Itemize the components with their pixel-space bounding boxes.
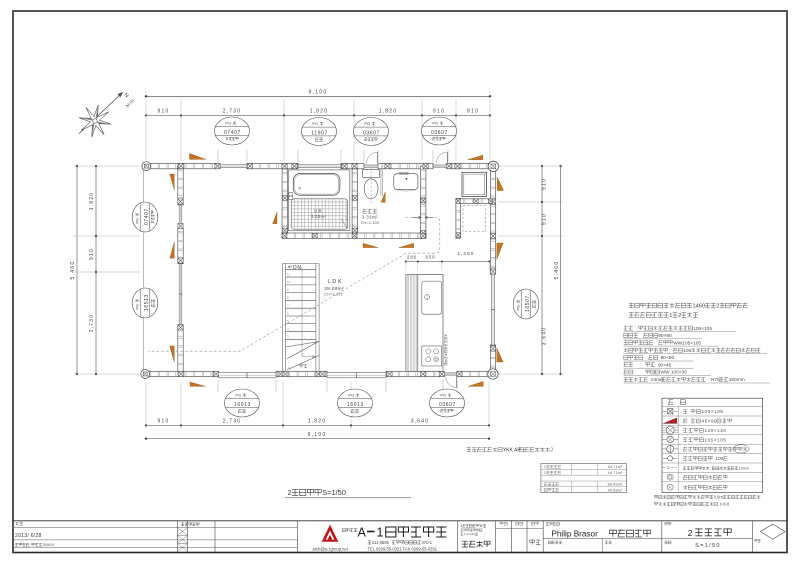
svg-text:PG: PG [516,305,521,311]
svg-text:1460: 1460 [693,304,705,310]
svg-text:910: 910 [89,248,95,260]
svg-text:2013/ 6/28: 2013/ 6/28 [15,533,42,539]
svg-text:PG: PG [432,121,438,126]
svg-text:24mm: 24mm [651,377,664,383]
svg-text:3.31m²: 3.31m² [362,215,379,220]
svg-text:PG: PG [364,121,370,126]
svg-text:910: 910 [467,108,479,114]
svg-text:44.71m²: 44.71m² [608,465,623,469]
svg-text:286: 286 [407,255,417,260]
svg-text:1: 1 [377,526,384,540]
svg-text:WW 105×30: WW 105×30 [660,370,687,376]
svg-text:PG: PG [440,393,446,398]
svg-text:5,460: 5,460 [70,261,76,280]
svg-text:A: A [358,526,367,540]
svg-text:S=1/50: S=1/50 [695,543,721,549]
svg-text:1 6 0 1 3: 1 6 0 1 3 [347,402,363,408]
svg-text:1,820: 1,820 [89,192,95,211]
svg-text:370-1: 370-1 [422,540,433,545]
svg-text:t=6.8: t=6.8 [720,502,730,507]
svg-text:0 3 6 0 7: 0 3 6 0 7 [431,130,447,136]
svg-text:N75: N75 [711,377,720,383]
svg-text:PG: PG [348,393,354,398]
svg-text:PG: PG [135,218,140,224]
svg-text:105×105: 105×105 [705,437,727,442]
svg-text:CH=2,400: CH=2,400 [361,221,380,225]
svg-text:89.42m²: 89.42m² [608,483,623,487]
svg-text:120×120: 120×120 [705,428,727,433]
svg-text:S=1/50: S=1/50 [322,488,346,497]
svg-text:1,820: 1,820 [310,108,329,114]
svg-text:0 7 4 0 7: 0 7 4 0 7 [224,130,240,136]
svg-text:1: 1 [544,465,546,469]
svg-text:1,820: 1,820 [308,418,327,424]
svg-text:1 1 9 0 7: 1 1 9 0 7 [311,130,327,136]
svg-text:WW105×105: WW105×105 [673,340,701,346]
svg-text:2: 2 [716,304,719,310]
svg-text:49.68m²: 49.68m² [608,488,623,492]
svg-text:105×105: 105×105 [702,409,724,414]
svg-text:910: 910 [158,418,170,424]
svg-text:PG: PG [312,121,318,126]
svg-text:2,730: 2,730 [89,314,95,333]
svg-text:150mm: 150mm [729,377,745,383]
svg-text:A-12345: A-12345 [464,532,476,536]
svg-text:10mm: 10mm [739,467,749,471]
svg-text:910: 910 [433,108,445,114]
svg-text:10: 10 [287,280,291,284]
svg-text:2,730: 2,730 [223,108,242,114]
svg-text:105: 105 [683,348,691,354]
svg-text:250624: 250624 [42,543,54,547]
svg-text:1,820: 1,820 [379,108,398,114]
svg-text:910: 910 [542,213,548,225]
svg-text:0 3 6 0 7: 0 3 6 0 7 [363,130,379,136]
svg-text:650: 650 [425,255,435,260]
svg-text:2: 2 [688,528,693,538]
svg-text:PG: PG [135,304,140,310]
svg-text:3,640: 3,640 [542,327,548,346]
svg-text:311-3505: 311-3505 [372,540,390,545]
svg-text:0.6m: 0.6m [714,495,724,500]
svg-text:45×90: 45×90 [702,419,718,424]
svg-text:PG: PG [235,393,241,398]
svg-text:90×90: 90×90 [658,333,672,339]
svg-text:910: 910 [158,108,170,114]
svg-text:1,250: 1,250 [458,251,475,256]
svg-text:90×45: 90×45 [658,362,672,368]
svg-text:9,100: 9,100 [308,432,327,438]
svg-text:0 7 4 0 7: 0 7 4 0 7 [144,208,150,224]
svg-text:1: 1 [669,313,672,319]
svg-text:0 3 6 0 7: 0 3 6 0 7 [439,402,455,408]
svg-text:2: 2 [678,313,681,319]
svg-text:90×90: 90×90 [661,355,675,361]
svg-text:100: 100 [715,456,723,461]
svg-text:105×105: 105×105 [693,326,712,332]
svg-text:UB: UB [314,209,323,214]
svg-text:PG: PG [225,121,231,126]
svg-text:5,460: 5,460 [554,261,560,280]
svg-text:9,100: 9,100 [309,89,328,95]
svg-text:1: 1 [461,524,463,528]
svg-text:2: 2 [544,471,546,475]
svg-text:Philip Brasor: Philip Brasor [551,529,598,538]
svg-text:DN: DN [293,265,302,271]
svg-text:1 6 5 1 3: 1 6 5 1 3 [144,294,150,310]
svg-text:11: 11 [287,272,290,276]
svg-text:1 6 5 0 7: 1 6 5 0 7 [525,295,531,311]
svg-text:910: 910 [542,178,548,190]
svg-text:arch@a-1group.net: arch@a-1group.net [313,547,349,552]
svg-text:YKK AP: YKK AP [503,448,521,454]
svg-text:2: 2 [288,488,292,497]
svg-text:2,730: 2,730 [223,418,242,424]
svg-text:3.03m²: 3.03m² [311,214,326,219]
svg-text:38.09m²: 38.09m² [324,286,344,291]
svg-text:LDK: LDK [328,279,344,285]
svg-text:3,640: 3,640 [411,418,430,424]
svg-text:44.71m²: 44.71m² [608,471,623,475]
svg-text:TEL 0299-55-0321 FAX 0299-55-: TEL 0299-55-0321 FAX 0299-55-0351 [368,547,438,552]
svg-text:1 6 0 1 3: 1 6 0 1 3 [234,402,250,408]
